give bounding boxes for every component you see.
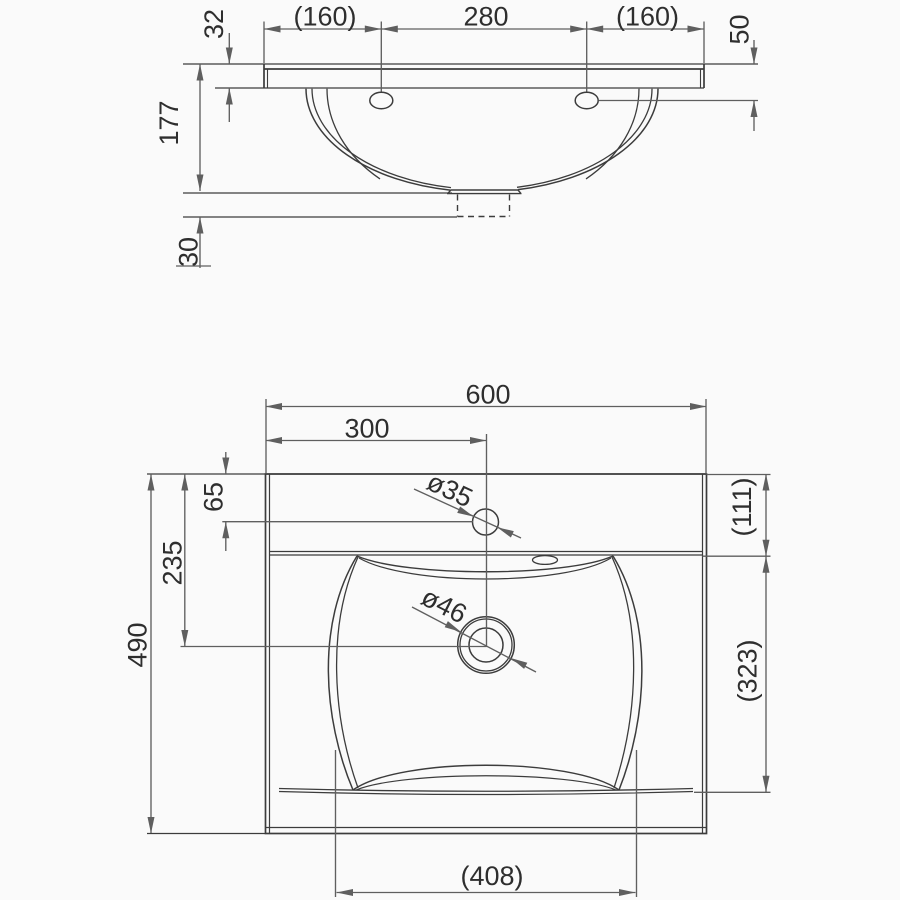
svg-text:(408): (408) <box>460 861 523 891</box>
svg-text:177: 177 <box>154 100 184 145</box>
svg-text:(160): (160) <box>293 2 356 32</box>
svg-text:(160): (160) <box>616 2 679 32</box>
svg-text:(323): (323) <box>733 639 763 702</box>
svg-text:280: 280 <box>463 2 508 32</box>
svg-text:(111): (111) <box>727 477 757 536</box>
svg-text:50: 50 <box>725 14 755 44</box>
svg-text:30: 30 <box>174 237 204 267</box>
svg-text:65: 65 <box>199 482 229 512</box>
svg-text:300: 300 <box>344 414 389 444</box>
svg-text:600: 600 <box>465 380 510 410</box>
svg-text:490: 490 <box>123 622 153 667</box>
svg-text:235: 235 <box>158 540 188 585</box>
svg-text:32: 32 <box>199 9 229 39</box>
